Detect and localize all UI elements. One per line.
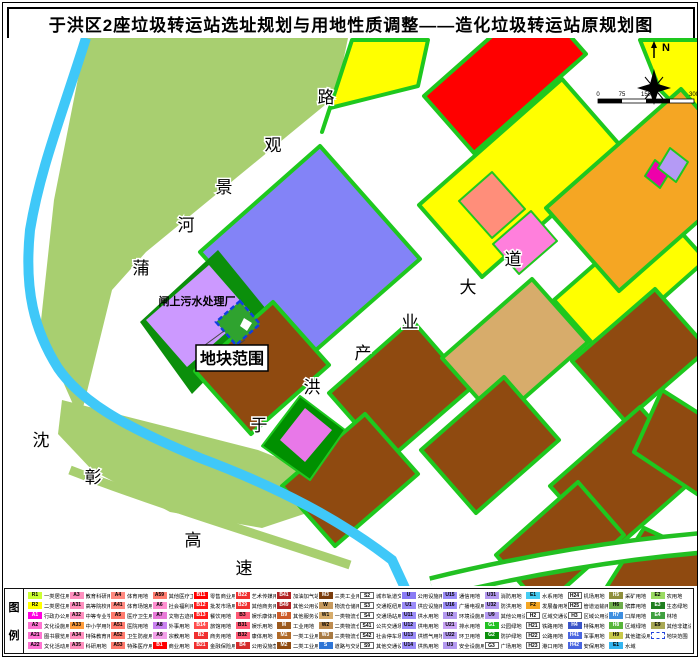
- road-label-char-yuhong-chanye-avenue: 道: [505, 250, 522, 269]
- road-label-char-shenzhang-expressway: 速: [236, 559, 253, 578]
- scale-tick-label: 300: [689, 92, 697, 98]
- legend-item: S2城市轨道交通用地: [360, 591, 401, 600]
- road-label-char-shenzhang-expressway: 彰: [85, 468, 102, 487]
- map-area: N 075150300 蒲河景观路于洪产业大道沈彰高速 闸上污水处理厂 地块范围: [3, 38, 697, 586]
- legend-item: B41加油加气站用地: [277, 591, 318, 600]
- legend-item: A51医院用地: [111, 621, 152, 630]
- legend-item: G1公园绿地: [485, 621, 526, 630]
- legend-item-label: 港口用地: [542, 642, 563, 650]
- legend-item: H4特殊用地: [568, 621, 609, 630]
- legend-item-label: 宗教用地: [169, 632, 190, 640]
- legend-item: 地块范围: [651, 631, 692, 640]
- legend-swatch: M2: [277, 642, 291, 649]
- legend-item: M2二类工业用地: [277, 641, 318, 650]
- legend-swatch: U9: [485, 612, 499, 619]
- legend-swatch: A3: [70, 592, 84, 599]
- legend-swatch: U21: [443, 622, 457, 629]
- legend-item: E3生态绿地: [651, 601, 692, 610]
- legend-item: A33中小学用地: [70, 621, 111, 630]
- legend-item-label: 铁路用地: [542, 622, 563, 630]
- legend-item: H5采矿用地: [609, 591, 650, 600]
- legend-swatch: A2: [28, 622, 42, 629]
- legend-item-label: 零售商业用地: [210, 592, 235, 600]
- legend-item: B13餐饮用地: [194, 611, 235, 620]
- planning-map-page: { "title": "于洪区2座垃圾转运站选址规划与用地性质调整——造化垃圾转…: [0, 0, 700, 659]
- legend-item: H22公路用地: [526, 631, 567, 640]
- legend-item: H8区域绿地: [609, 621, 650, 630]
- legend-item-label: 中小学用地: [86, 622, 111, 630]
- legend-item: A53特殊医疗用地: [111, 641, 152, 650]
- legend-item-label: 加油加气站用地: [293, 592, 318, 600]
- legend-item: U13供燃气用地: [402, 631, 443, 640]
- legend-item: A21图书展览用地: [28, 631, 69, 640]
- legend-item-label: 公路用地: [542, 632, 563, 640]
- legend-swatch: B2: [194, 632, 208, 639]
- page-title: 于洪区2座垃圾转运站选址规划与用地性质调整——造化垃圾转运站原规划图: [49, 11, 653, 36]
- legend-item: A32中等专业学校用地: [70, 611, 111, 620]
- legend-swatch: E3: [651, 602, 665, 609]
- legend-item: E1水系用地: [526, 591, 567, 600]
- legend-item: B1商业用地: [153, 641, 194, 650]
- legend-swatch: B3: [236, 612, 250, 619]
- legend-item: A34特殊教育用地: [70, 631, 111, 640]
- legend-swatch: H8: [609, 622, 623, 629]
- legend-item: A5医疗卫生用地: [111, 611, 152, 620]
- legend-swatch: S41: [360, 622, 374, 629]
- legend-item-label: 图书展览用地: [44, 632, 69, 640]
- road-label-char-yuhong-chanye-avenue: 大: [460, 278, 477, 297]
- legend-swatch: U15: [443, 592, 457, 599]
- legend-swatch: A51: [111, 622, 125, 629]
- legend-swatch: W1: [319, 612, 333, 619]
- legend-swatch: R1: [28, 592, 42, 599]
- legend-item-label: 社会停车场用地: [376, 632, 401, 640]
- legend-item: A6社会福利用地: [153, 601, 194, 610]
- legend-item: H9其他建设用地: [609, 631, 650, 640]
- legend-item-label: 军事用地: [584, 632, 605, 640]
- legend-swatch: H22: [526, 632, 540, 639]
- legend-swatch: U3: [443, 642, 457, 649]
- legend-swatch: B49: [277, 602, 291, 609]
- legend-swatch: A52: [111, 632, 125, 639]
- legend-item: S道路与交通设施用地: [319, 641, 360, 650]
- legend-item: U公用设施用地: [402, 591, 443, 600]
- legend-item: H42安保用地: [568, 641, 609, 650]
- legend-swatch: H23: [526, 642, 540, 649]
- legend-item: E4林地: [651, 611, 692, 620]
- legend-item-label: 殡葬用地: [625, 602, 646, 610]
- legend-item-label: 交通枢纽用地: [376, 602, 401, 610]
- legend-item-label: 高等院校用地: [86, 602, 111, 610]
- legend-item: B9其他服务设施用地: [277, 611, 318, 620]
- legend-swatch: E9: [651, 622, 665, 629]
- legend-item-label: 供水用地: [418, 612, 439, 620]
- legend-item: U31消防用地: [485, 591, 526, 600]
- legend-item-label: 发展备用地: [542, 602, 567, 610]
- legend-item-label: 农用地: [667, 592, 683, 600]
- legend-swatch: H6: [609, 602, 623, 609]
- road-label-char-yuhong-chanye-avenue: 业: [402, 313, 419, 332]
- legend-item-label: 生态绿地: [667, 602, 688, 610]
- legend-item: B31娱乐用地: [236, 621, 277, 630]
- legend-item-label: 安全设施用地: [459, 642, 484, 650]
- road-label-char-yuhong-chanye-avenue: 产: [355, 344, 372, 363]
- legend-item-label: 物流仓储用地: [335, 602, 360, 610]
- legend-item: A59其他医疗卫生用地: [153, 591, 194, 600]
- legend-swatch: H2: [526, 612, 540, 619]
- legend-item: U22环卫用地: [443, 631, 484, 640]
- legend-item: B11零售商业用地: [194, 591, 235, 600]
- legend-swatch: A41: [111, 602, 125, 609]
- legend-swatch: E1: [609, 642, 623, 649]
- legend-panel: 图 例 R1一类居住用地R2二类居住用地A1行政办公用地A2文化设施用地A21图…: [4, 588, 694, 654]
- legend-swatch: B13: [194, 612, 208, 619]
- legend-item-label: 体育用地: [127, 592, 148, 600]
- legend-item-label: 通信用地: [459, 592, 480, 600]
- legend-item: H3区域公用设施用地: [568, 611, 609, 620]
- legend-swatch: A21: [28, 632, 42, 639]
- legend-swatch: G1: [485, 622, 499, 629]
- legend-item-label: 康体用地: [252, 632, 273, 640]
- road-label-char-shenzhang-expressway: 高: [185, 531, 202, 550]
- legend-item-label: 管道运输用地: [584, 602, 609, 610]
- legend-swatch: S42: [360, 632, 374, 639]
- legend-item-label: 安保用地: [584, 642, 605, 650]
- legend-swatch: A9: [153, 632, 167, 639]
- legend-item-label: 交通场站用地: [376, 612, 401, 620]
- legend-item: H24机场用地: [568, 591, 609, 600]
- legend-item: A2文化设施用地: [28, 621, 69, 630]
- legend-item-label: 其他交通设施用地: [376, 642, 401, 650]
- legend-item: A52卫生防疫用地: [111, 631, 152, 640]
- legend-item-label: 商务用地: [210, 632, 231, 640]
- legend-item-label: 教育科研用地: [86, 592, 111, 600]
- legend-swatch: U32: [485, 602, 499, 609]
- legend-swatch: W3: [319, 632, 333, 639]
- legend-item: G2防护绿地: [485, 631, 526, 640]
- legend-item: S3交通枢纽用地: [360, 601, 401, 610]
- legend-item-label: 医疗卫生用地: [127, 612, 152, 620]
- legend-swatch: H42: [568, 642, 582, 649]
- road-label-char-puhe-jingguan-road: 蒲: [133, 259, 150, 278]
- legend-item-label: 防护绿地: [501, 632, 522, 640]
- legend-item: A4体育用地: [111, 591, 152, 600]
- legend-title-char-1: 图: [9, 599, 20, 615]
- legend-item: M1一类工业用地: [277, 631, 318, 640]
- legend-item: B22艺术传媒用地: [236, 591, 277, 600]
- legend-item-label: 公用设施用地: [418, 592, 443, 600]
- legend-item-label: 特殊医疗用地: [127, 642, 152, 650]
- legend-item: A9宗教用地: [153, 631, 194, 640]
- road-label-char-puhe-jingguan-road: 河: [178, 216, 195, 235]
- legend-item: H7口岸用地: [609, 611, 650, 620]
- legend-swatch: B29: [236, 602, 250, 609]
- legend-item: U15通信用地: [443, 591, 484, 600]
- planning-map: N 075150300 蒲河景观路于洪产业大道沈彰高速 闸上污水处理厂 地块范围: [3, 38, 697, 586]
- legend-item-label: 公用设施营业网点用地: [252, 642, 277, 650]
- road-label-char-puhe-jingguan-road: 景: [216, 178, 233, 197]
- legend-item-label: 文化设施用地: [44, 622, 69, 630]
- legend-swatch: S9: [360, 642, 374, 649]
- legend-item-label: 其他医疗卫生用地: [169, 592, 194, 600]
- legend-item: U1供应设施用地: [402, 601, 443, 610]
- legend-item: B2商务用地: [194, 631, 235, 640]
- legend-swatch: B1: [153, 642, 167, 649]
- legend-swatch: U12: [402, 622, 416, 629]
- legend-swatch: U31: [485, 592, 499, 599]
- legend-swatch: A32: [70, 612, 84, 619]
- legend-item-label: 水系用地: [542, 592, 563, 600]
- legend-item: B32康体用地: [236, 631, 277, 640]
- legend-item: B3娱乐康体用地: [236, 611, 277, 620]
- legend-swatch: S2: [360, 592, 374, 599]
- legend-item: B4公用设施营业网点用地: [236, 641, 277, 650]
- legend-item: M工业用地: [277, 621, 318, 630]
- legend-swatch: M: [277, 622, 291, 629]
- legend-item: A1行政办公用地: [28, 611, 69, 620]
- legend-item-label: 供热用地: [418, 642, 439, 650]
- road-label-char-puhe-jingguan-road: 观: [265, 136, 282, 155]
- legend-swatch: A33: [70, 622, 84, 629]
- legend-item-label: 其他公用设施用地: [501, 612, 526, 620]
- legend-item: W3三类物流仓储用地: [319, 631, 360, 640]
- legend-item-label: 区域绿地: [625, 622, 646, 630]
- legend-item-label: 行政办公用地: [44, 612, 69, 620]
- legend-item-label: 二类物流仓储用地: [335, 622, 360, 630]
- legend-swatch: B32: [236, 632, 250, 639]
- legend-item: A41体育场馆用地: [111, 601, 152, 610]
- legend-swatch: M1: [277, 632, 291, 639]
- legend-item-label: 环卫用地: [459, 632, 480, 640]
- legend-item-label: 社会福利用地: [169, 602, 194, 610]
- road-label-char-puhe-jingguan-road: 路: [318, 88, 335, 107]
- legend-item: U9其他公用设施用地: [485, 611, 526, 620]
- callout-label: 地块范围: [200, 349, 264, 368]
- legend-item-label: 广场用地: [501, 642, 522, 650]
- legend-item-label: 一类物流仓储用地: [335, 612, 360, 620]
- legend-swatch: H41: [568, 632, 582, 639]
- legend-item: H25管道运输用地: [568, 601, 609, 610]
- road-label-char-yuhong-chanye-avenue: 洪: [304, 378, 321, 397]
- legend-item-label: 体育场馆用地: [127, 602, 152, 610]
- legend-swatch: A7: [153, 612, 167, 619]
- legend-item: U2环境设施用地: [443, 611, 484, 620]
- legend-item: M3三类工业用地: [319, 591, 360, 600]
- legend-item: W2二类物流仓储用地: [319, 621, 360, 630]
- legend-swatch: A6: [153, 602, 167, 609]
- legend-swatch: U14: [402, 642, 416, 649]
- legend-item: B21金融保险用地: [194, 641, 235, 650]
- legend-item-label: 工业用地: [293, 622, 314, 630]
- legend-item: A31高等院校用地: [70, 601, 111, 610]
- legend-item: B14旅馆用地: [194, 621, 235, 630]
- legend-item: U16广播电视用地: [443, 601, 484, 610]
- legend-swatch: W2: [319, 622, 333, 629]
- legend-item-label: 娱乐用地: [252, 622, 273, 630]
- legend-swatch: R2: [28, 602, 42, 609]
- legend-swatch: U16: [443, 602, 457, 609]
- legend-item-label: 供应设施用地: [418, 602, 443, 610]
- legend-swatch: B21: [194, 642, 208, 649]
- legend-swatch: A35: [70, 642, 84, 649]
- legend-item-label: 林地: [667, 612, 678, 620]
- legend-item: A22文化活动用地: [28, 641, 69, 650]
- legend-item: S4交通场站用地: [360, 611, 401, 620]
- legend-swatch-dashed: [651, 632, 665, 639]
- legend-swatch: U11: [402, 612, 416, 619]
- legend-swatch: H24: [568, 592, 582, 599]
- legend-item: A35科研用地: [70, 641, 111, 650]
- legend-item-label: 三类工业用地: [335, 592, 360, 600]
- legend-swatch: M3: [319, 592, 333, 599]
- legend-swatch: U: [402, 592, 416, 599]
- legend-item-label: 口岸用地: [625, 612, 646, 620]
- legend-item: U32防洪用地: [485, 601, 526, 610]
- legend-item: S41公共交通场站用地: [360, 621, 401, 630]
- legend-swatch: B31: [236, 622, 250, 629]
- legend-item-label: 特殊教育用地: [86, 632, 111, 640]
- legend-item-label: 其他非建设用地: [667, 622, 692, 630]
- legend-item: F2发展备用地: [526, 601, 567, 610]
- legend-item-label: 一类工业用地: [293, 632, 318, 640]
- legend-swatch: H3: [568, 612, 582, 619]
- legend-item-label: 医院用地: [127, 622, 148, 630]
- legend-swatch: F2: [526, 602, 540, 609]
- legend-item: E1水域: [609, 641, 650, 650]
- legend-item: U3安全设施用地: [443, 641, 484, 650]
- legend-swatch: B11: [194, 592, 208, 599]
- legend-swatch: U13: [402, 632, 416, 639]
- legend-item-label: 区域公用设施用地: [584, 612, 609, 620]
- legend-swatch: A34: [70, 632, 84, 639]
- legend-swatch: U1: [402, 602, 416, 609]
- legend-swatch: A5: [111, 612, 125, 619]
- legend-swatch: B22: [236, 592, 250, 599]
- legend-swatch: H25: [568, 602, 582, 609]
- legend-item: H21铁路用地: [526, 621, 567, 630]
- legend-title: 图 例: [5, 589, 24, 653]
- legend-item-label: 批发市场用地: [210, 602, 235, 610]
- road-label-char-shenzhang-expressway: 沈: [33, 431, 50, 450]
- title-bar: 于洪区2座垃圾转运站选址规划与用地性质调整——造化垃圾转运站原规划图: [7, 7, 695, 40]
- legend-swatch: H21: [526, 622, 540, 629]
- legend-item-label: 二类居住用地: [44, 602, 69, 610]
- legend-swatch: A59: [153, 592, 167, 599]
- legend-item-label: 一类居住用地: [44, 592, 69, 600]
- legend-swatch: H9: [609, 632, 623, 639]
- legend-item: R1一类居住用地: [28, 591, 69, 600]
- legend-item-label: 科研用地: [86, 642, 107, 650]
- legend-swatch: H5: [609, 592, 623, 599]
- legend-item-label: 卫生防疫用地: [127, 632, 152, 640]
- sewage-plant-label: 闸上污水处理厂: [159, 294, 236, 308]
- scale-tick-label: 0: [596, 92, 600, 98]
- legend-swatch: S: [319, 642, 333, 649]
- legend-item: E2农用地: [651, 591, 692, 600]
- legend-item: E9其他非建设用地: [651, 621, 692, 630]
- legend-item-label: 地块范围: [667, 632, 688, 640]
- legend-item-label: 金融保险用地: [210, 642, 235, 650]
- legend-item-label: 机场用地: [584, 592, 605, 600]
- legend-item: S42社会停车场用地: [360, 631, 401, 640]
- legend-swatch: S3: [360, 602, 374, 609]
- legend-item-label: 水域: [625, 642, 636, 650]
- scale-tick-label: 150: [641, 92, 652, 98]
- legend-item-label: 区域交通设施用地: [542, 612, 567, 620]
- legend-item-label: 供电用地: [418, 622, 439, 630]
- legend-swatch: B12: [194, 602, 208, 609]
- legend-item-label: 其他商务用地: [252, 602, 277, 610]
- legend-item-label: 供燃气用地: [418, 632, 443, 640]
- legend-swatch: E1: [526, 592, 540, 599]
- legend-item-label: 排水用地: [459, 622, 480, 630]
- legend-swatch: U2: [443, 612, 457, 619]
- legend-item: A7文物古迹用地: [153, 611, 194, 620]
- legend-item-label: 外事用地: [169, 622, 190, 630]
- legend-item: H41军事用地: [568, 631, 609, 640]
- legend-item: R2二类居住用地: [28, 601, 69, 610]
- legend-swatch: A53: [111, 642, 125, 649]
- legend-item: U12供电用地: [402, 621, 443, 630]
- legend-item: S9其他交通设施用地: [360, 641, 401, 650]
- legend-item-label: 环境设施用地: [459, 612, 484, 620]
- legend-swatch: B9: [277, 612, 291, 619]
- legend-item-label: 二类工业用地: [293, 642, 318, 650]
- legend-swatch: E2: [651, 592, 665, 599]
- legend-item-label: 城市轨道交通用地: [376, 592, 401, 600]
- legend-item-label: 娱乐康体用地: [252, 612, 277, 620]
- legend-item: A3教育科研用地: [70, 591, 111, 600]
- legend-item-label: 商业用地: [169, 642, 190, 650]
- legend-item-label: 三类物流仓储用地: [335, 632, 360, 640]
- legend-item-label: 公园绿地: [501, 622, 522, 630]
- legend-item: U21排水用地: [443, 621, 484, 630]
- legend-swatch: S4: [360, 612, 374, 619]
- legend-swatch: W: [319, 602, 333, 609]
- legend-swatch: G3: [485, 642, 499, 649]
- legend-swatch: A4: [111, 592, 125, 599]
- legend-item: W1一类物流仓储用地: [319, 611, 360, 620]
- legend-item-label: 道路与交通设施用地: [335, 642, 360, 650]
- legend-swatch: B14: [194, 622, 208, 629]
- legend-item-label: 采矿用地: [625, 592, 646, 600]
- legend-item: U11供水用地: [402, 611, 443, 620]
- legend-item: A8外事用地: [153, 621, 194, 630]
- legend-item: B49其他公用设施营业网点用地: [277, 601, 318, 610]
- legend-swatch: A8: [153, 622, 167, 629]
- legend-swatch: A1: [28, 612, 42, 619]
- legend-item-label: 防洪用地: [501, 602, 522, 610]
- legend-swatch: A31: [70, 602, 84, 609]
- legend-item: W物流仓储用地: [319, 601, 360, 610]
- legend-swatch: E4: [651, 612, 665, 619]
- legend-item: H6殡葬用地: [609, 601, 650, 610]
- legend-item-label: 文化活动用地: [44, 642, 69, 650]
- legend-item: G3广场用地: [485, 641, 526, 650]
- legend-item-label: 艺术传媒用地: [252, 592, 277, 600]
- legend-grid: R1一类居住用地R2二类居住用地A1行政办公用地A2文化设施用地A21图书展览用…: [24, 589, 693, 653]
- legend-item-label: 文物古迹用地: [169, 612, 194, 620]
- legend-swatch: B4: [236, 642, 250, 649]
- road-label-char-yuhong-chanye-avenue: 于: [251, 416, 268, 435]
- legend-item: U14供热用地: [402, 641, 443, 650]
- legend-swatch: G2: [485, 632, 499, 639]
- legend-swatch: H4: [568, 622, 582, 629]
- legend-item: H23港口用地: [526, 641, 567, 650]
- legend-item-label: 公共交通场站用地: [376, 622, 401, 630]
- legend-item-label: 特殊用地: [584, 622, 605, 630]
- legend-title-char-2: 例: [9, 627, 20, 643]
